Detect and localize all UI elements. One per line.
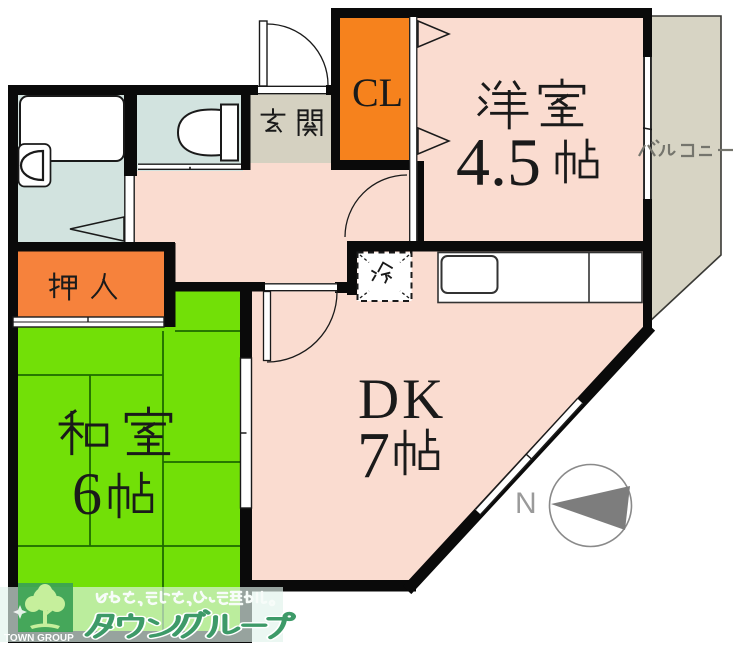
svg-text:N: N xyxy=(515,487,537,520)
svg-text:4.5: 4.5 xyxy=(456,124,541,200)
svg-text:6: 6 xyxy=(72,461,102,527)
svg-text:TOWN GROUP: TOWN GROUP xyxy=(4,633,74,644)
svg-text:CL: CL xyxy=(352,70,403,115)
svg-text:7: 7 xyxy=(357,419,390,492)
